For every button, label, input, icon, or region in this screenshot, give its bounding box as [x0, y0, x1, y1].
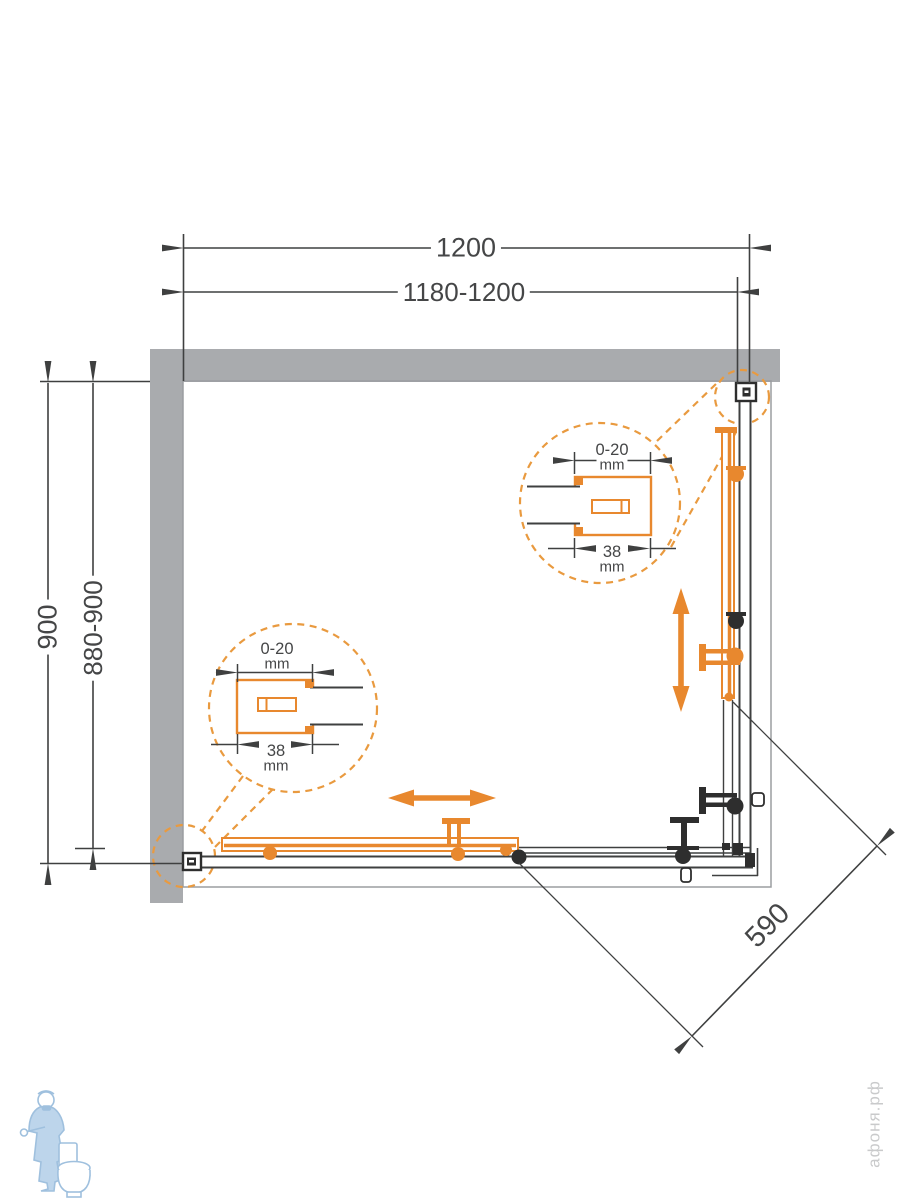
roller: [728, 466, 744, 482]
dim-line-590: [692, 846, 877, 1036]
glass-section: [310, 687, 363, 725]
shower-enclosure-drawing: [0, 0, 900, 1200]
detail-right-width-unit: mm: [597, 560, 628, 575]
door-handle-right: [699, 644, 706, 671]
dim-width-adjust-label: 1180-1200: [398, 279, 530, 305]
dimension-diagram-page: 1200 1180-1200 900 880-900 590 0-20 mm 3…: [0, 0, 900, 1200]
roller: [512, 850, 527, 865]
roller: [727, 798, 744, 815]
bottom-panel-assembly: [183, 817, 758, 882]
detail-left-width-unit: mm: [261, 759, 292, 774]
detail-left-content: [211, 664, 363, 754]
roller: [500, 844, 512, 856]
right-panel-assembly: [699, 383, 764, 858]
bracket-tab: [752, 793, 764, 806]
leader-line: [657, 383, 717, 441]
leader-line: [202, 776, 243, 831]
bracket-tab: [681, 868, 691, 882]
glass-section: [527, 486, 580, 524]
detail-right-adjust-unit: mm: [597, 458, 628, 473]
detail-left-adjust-unit: mm: [262, 657, 293, 672]
plumber-logo: [21, 1091, 91, 1197]
vertical-slide-arrow: [673, 588, 690, 712]
dim-width-overall-label: 1200: [431, 235, 501, 262]
roller: [451, 847, 465, 861]
profile-slot: [592, 500, 629, 513]
roller: [675, 848, 691, 864]
profile-slot: [258, 698, 296, 711]
left-wall: [150, 349, 183, 903]
horizontal-slide-arrow: [388, 790, 496, 807]
door-handle-black: [699, 787, 706, 814]
bottom-glass: [201, 856, 753, 868]
detail-callouts: [153, 370, 769, 887]
site-watermark: афоня.рф: [866, 1080, 883, 1168]
slide-direction-arrows: [388, 588, 690, 807]
roller: [728, 613, 744, 629]
door-handle-black: [670, 817, 699, 823]
roller: [263, 846, 277, 860]
dim-depth-overall-label: 900: [35, 599, 62, 654]
top-wall: [150, 349, 780, 382]
dim-depth-adjust-label: 880-900: [80, 575, 106, 680]
door-handle-bottom: [442, 818, 470, 824]
